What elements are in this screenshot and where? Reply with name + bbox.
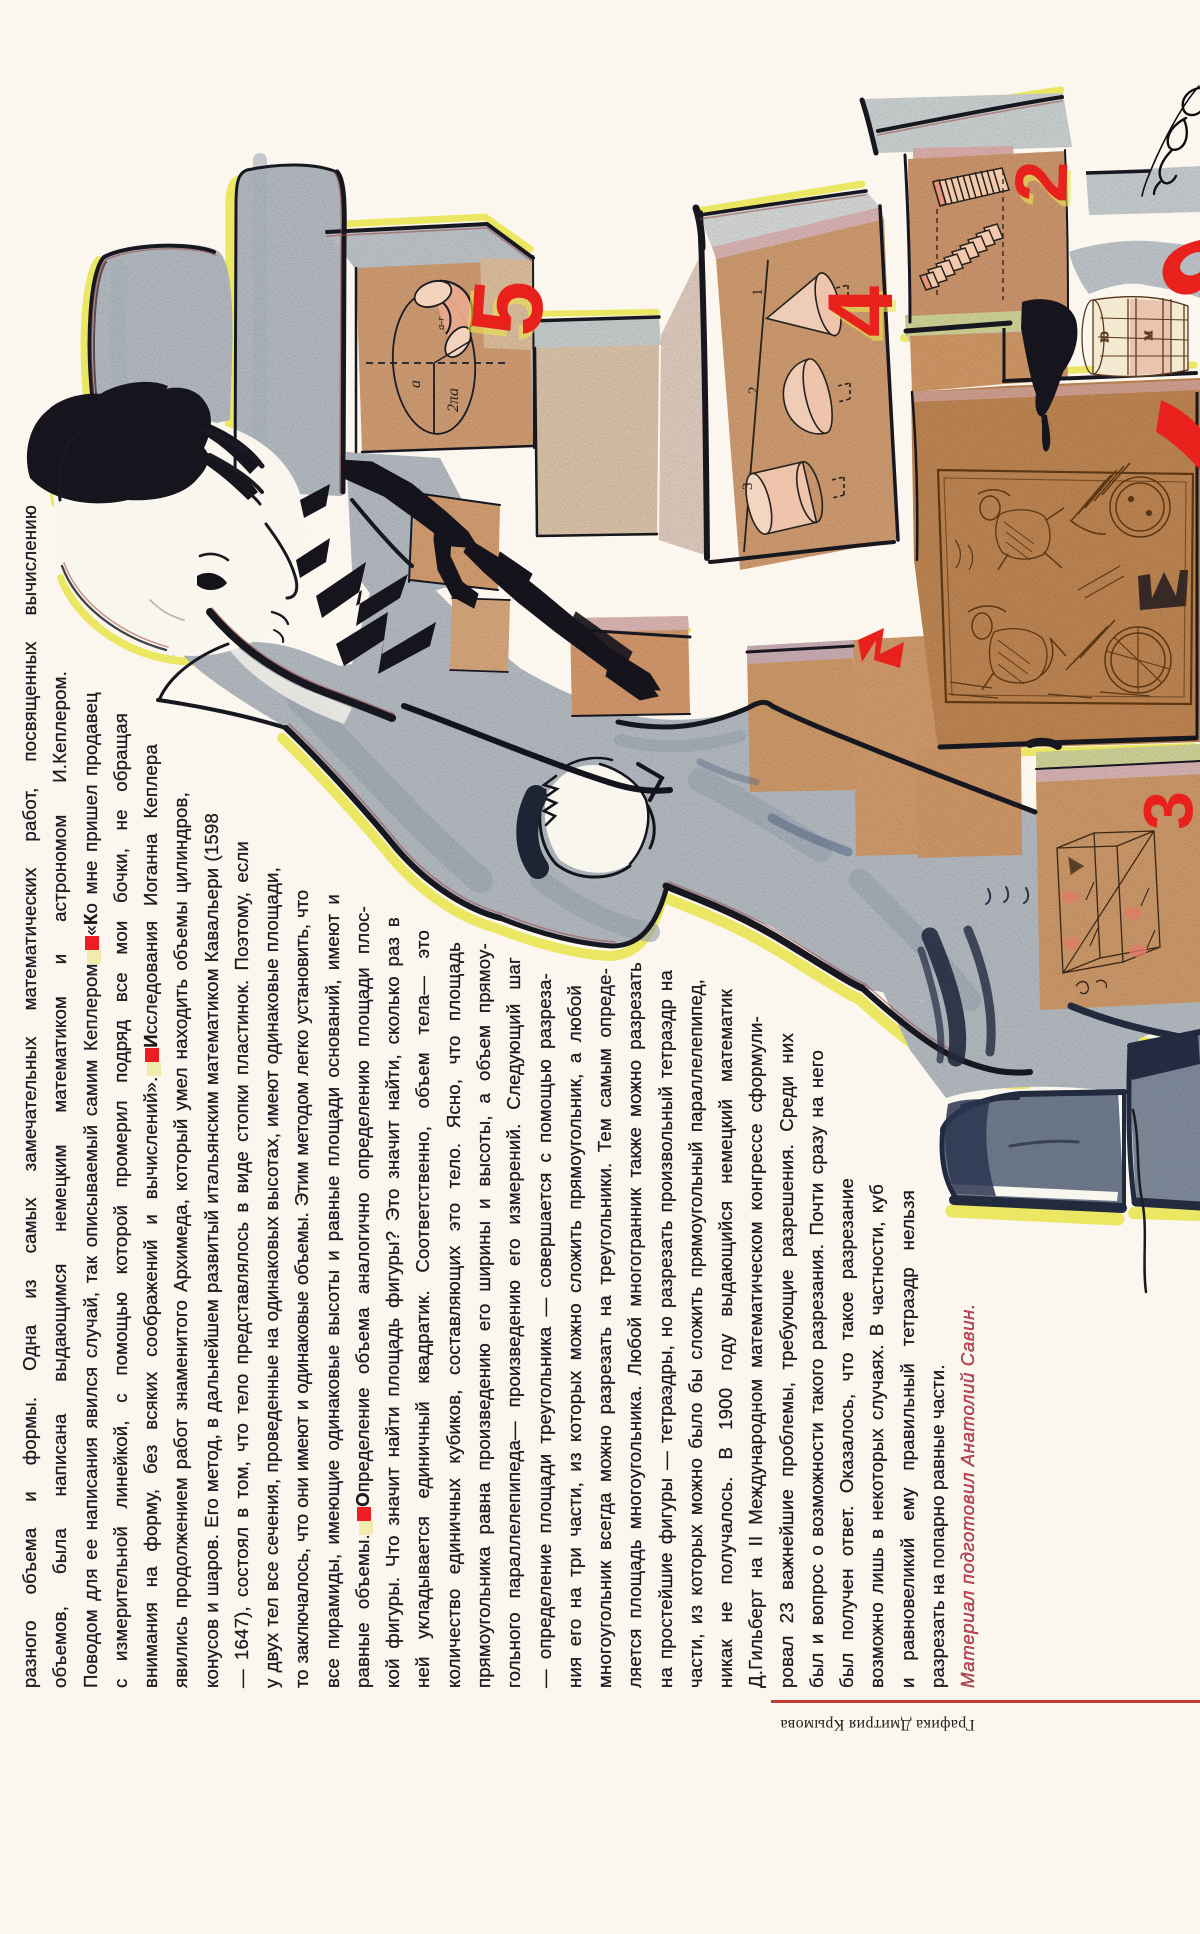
svg-text:М: М xyxy=(1144,331,1155,340)
svg-text:3: 3 xyxy=(1129,791,1200,830)
svg-text:Ю: Ю xyxy=(1100,332,1111,342)
